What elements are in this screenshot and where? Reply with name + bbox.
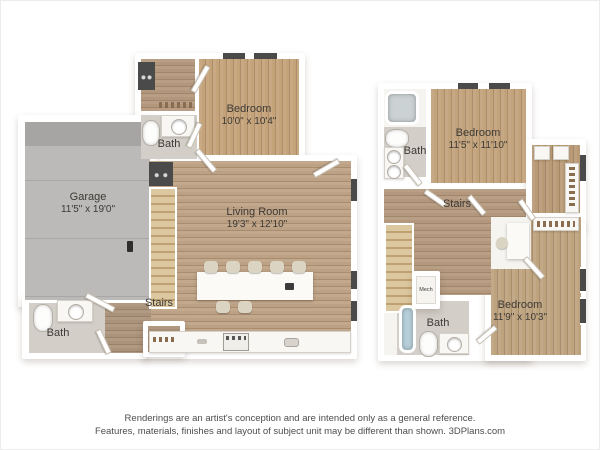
hall-counter-items [159, 102, 195, 108]
dining-chair [238, 301, 252, 313]
window-bedroom-upper [456, 83, 480, 89]
dining-chair [204, 261, 218, 273]
bedroom-closet-items [537, 221, 575, 227]
bedroom-upper-label-2: Bedroom 11'5" x 11'10" [449, 127, 508, 152]
dining-chair [216, 301, 230, 313]
bath-lower-label: Bath [47, 327, 70, 340]
dining-chair [248, 261, 262, 273]
window-bedroom-lower [580, 267, 586, 293]
wing-washer [534, 146, 550, 160]
disclaimer-line-1: Renderings are an artist's conception an… [1, 412, 599, 425]
sink-bath-lower-2 [447, 337, 462, 352]
bedroom-lower-label-2: Bedroom 11'9" x 10'3" [493, 299, 547, 324]
bath-upper-label-2: Bath [404, 145, 427, 158]
living-room-name: Living Room [226, 206, 287, 219]
dining-chair [292, 261, 306, 273]
bedroom-name: Bedroom [222, 103, 277, 116]
dining-chair [226, 261, 240, 273]
bath-upper-label: Bath [158, 138, 181, 151]
sink2-bath-upper-2 [387, 165, 401, 179]
wing-dryer [553, 146, 569, 160]
garage-label: Garage 11'5" x 19'0" [61, 191, 115, 216]
disclaimer-line-2: Features, materials, finishes and layout… [1, 425, 599, 438]
garage-name: Garage [61, 191, 115, 204]
fireplace-unit [149, 162, 173, 186]
window-living [351, 299, 357, 323]
garage-door-hardware [127, 241, 133, 252]
living-room-dims: 19'3" x 12'10" [226, 219, 287, 231]
washer-dryer-stack [138, 62, 155, 90]
bedroom-upper-dims-2: 11'5" x 11'10" [449, 140, 508, 152]
mech-label: Mech [419, 287, 432, 293]
stairs-floor1 [149, 187, 177, 309]
window-living [351, 269, 357, 291]
bath-lower-label-2: Bath [427, 317, 450, 330]
window-bedroom-lower [580, 297, 586, 325]
window-bedroom-upper [487, 83, 512, 89]
sink-bath-lower [68, 304, 84, 320]
dining-table [197, 272, 313, 300]
tub-bath-lower-2 [399, 305, 416, 353]
toilet-bath-lower-2 [419, 331, 438, 357]
window-closet-wing [580, 153, 586, 183]
living-room-label: Living Room 19'3" x 12'10" [226, 206, 287, 231]
bedroom-dims: 10'0" x 10'4" [222, 116, 277, 128]
tub-bath-upper-2 [385, 91, 419, 125]
bedroom-lower-name-2: Bedroom [493, 299, 547, 312]
kitchen-counter [149, 331, 351, 353]
stairs-label-floor1: Stairs [145, 297, 173, 310]
wing-shelf-items [569, 167, 575, 209]
dining-chair [270, 261, 284, 273]
stove-range [223, 333, 249, 351]
kitchen-small-appliance [197, 339, 207, 344]
window-living [351, 177, 357, 203]
laptop [285, 283, 294, 290]
desk [507, 223, 529, 259]
closet-shelf-items [153, 337, 175, 342]
stair-base-floor-2 [384, 313, 397, 355]
floor-plan-page: Garage 11'5" x 19'0" Bedroom 10'0" x 10'… [0, 0, 600, 450]
stairs-floor2 [384, 223, 414, 313]
window-bedroom [221, 53, 247, 59]
garage-dims: 11'5" x 19'0" [61, 204, 115, 216]
window-bedroom [252, 53, 279, 59]
sink-bath-upper-2 [387, 150, 401, 164]
bedroom-lower-dims-2: 11'9" x 10'3" [493, 312, 547, 324]
bedroom-upper-name-2: Bedroom [449, 127, 508, 140]
sink-bath-upper [171, 119, 187, 135]
stairs-label-floor2: Stairs [443, 198, 471, 211]
stove-burners [226, 336, 246, 340]
desk-chair [496, 237, 508, 249]
bedroom-label: Bedroom 10'0" x 10'4" [222, 103, 277, 128]
kitchen-sink [284, 338, 299, 347]
